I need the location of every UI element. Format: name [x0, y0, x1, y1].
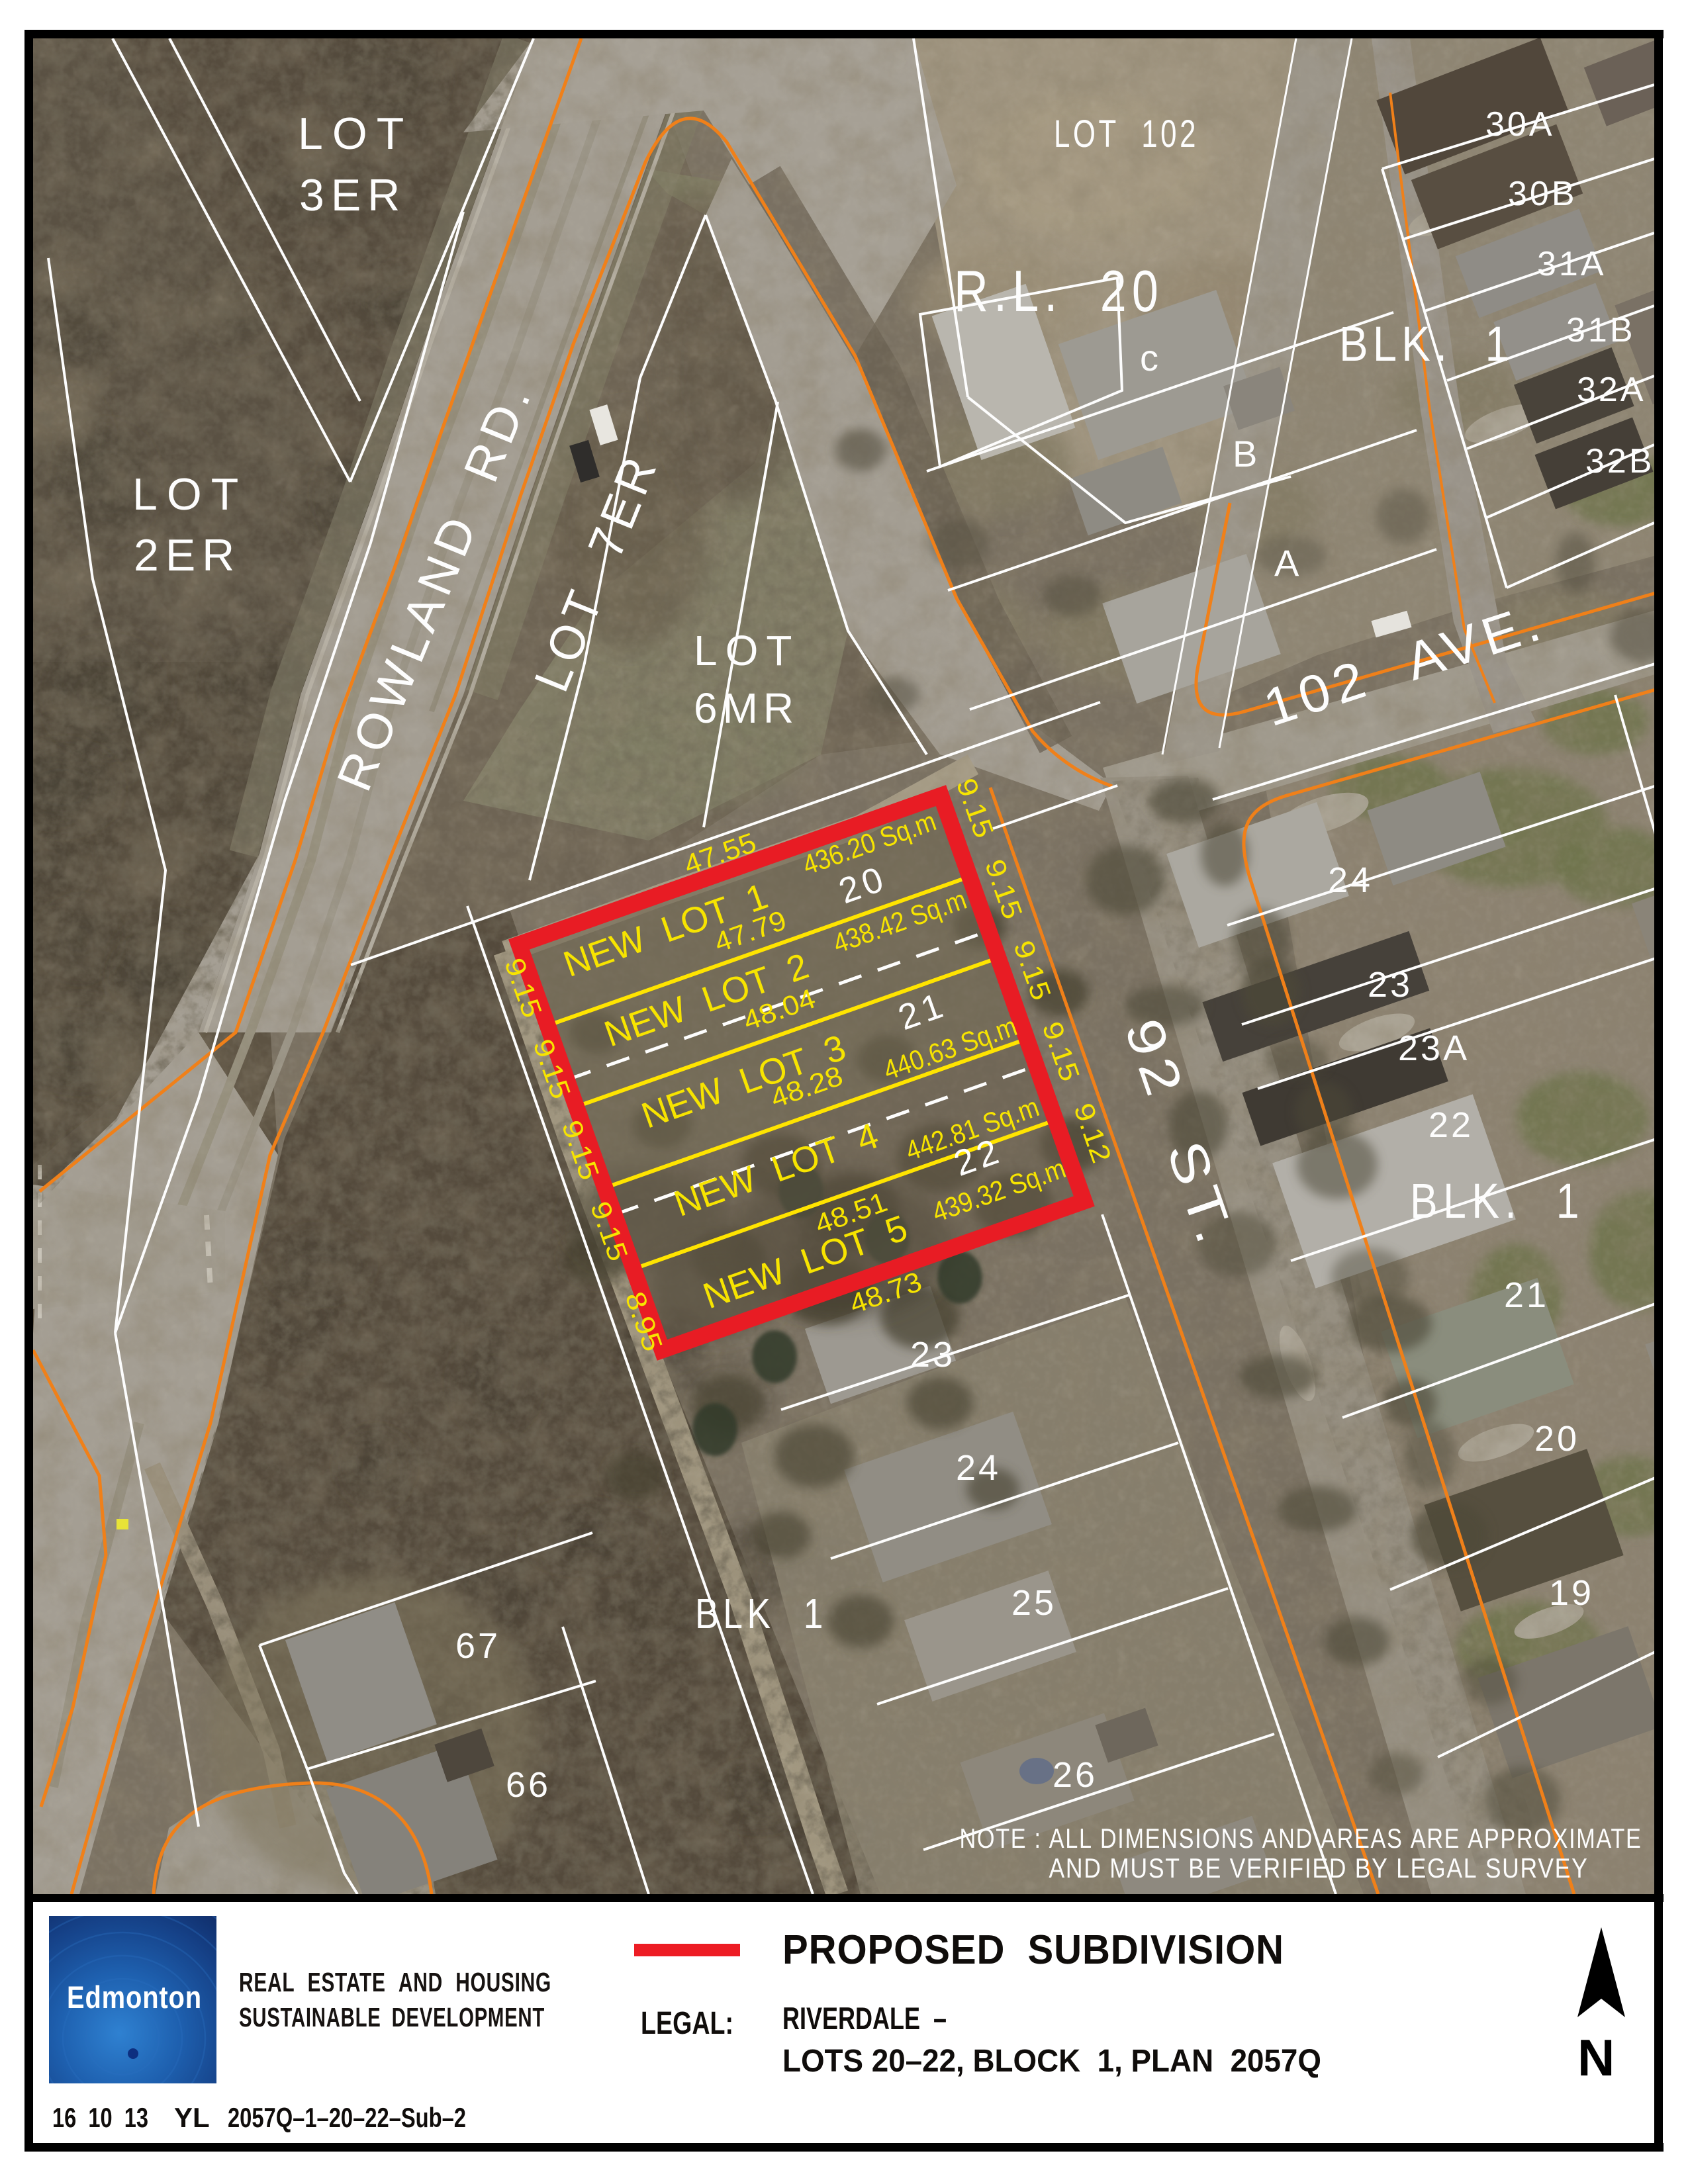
svg-text:c: c: [1140, 337, 1158, 379]
svg-text:6MR: 6MR: [694, 684, 799, 732]
svg-text:20: 20: [1534, 1419, 1579, 1459]
svg-text:2ER: 2ER: [134, 530, 241, 580]
svg-text:23A: 23A: [1398, 1028, 1470, 1068]
svg-text:BLK. 1: BLK. 1: [1410, 1173, 1585, 1228]
svg-text:19: 19: [1549, 1573, 1594, 1613]
svg-text:R.L. 20: R.L. 20: [954, 258, 1164, 324]
svg-text:30B: 30B: [1508, 175, 1577, 213]
svg-text:16 10 13: 16 10 13: [52, 2102, 148, 2133]
svg-text:REAL ESTATE AND HOUSING: REAL ESTATE AND HOUSING: [239, 1967, 551, 1997]
svg-text:A: A: [1274, 542, 1299, 584]
svg-text:SUSTAINABLE DEVELOPMENT: SUSTAINABLE DEVELOPMENT: [239, 2002, 545, 2032]
svg-text:YL: YL: [174, 2102, 210, 2133]
svg-text:67: 67: [455, 1626, 500, 1666]
svg-text:30A: 30A: [1485, 105, 1555, 144]
svg-text:2057Q–1–20–22–Sub–2: 2057Q–1–20–22–Sub–2: [228, 2102, 466, 2133]
svg-text:B: B: [1233, 433, 1257, 475]
svg-text:NOTE : ALL DIMENSIONS AND AREA: NOTE : ALL DIMENSIONS AND AREAS ARE APPR…: [960, 1823, 1642, 1854]
svg-text:LEGAL:: LEGAL:: [641, 2006, 733, 2041]
svg-text:21: 21: [1504, 1275, 1549, 1315]
svg-text:N: N: [1577, 2028, 1615, 2087]
svg-text:66: 66: [506, 1765, 551, 1805]
svg-text:24: 24: [1328, 860, 1373, 900]
svg-text:23: 23: [1368, 965, 1413, 1005]
svg-text:3ER: 3ER: [299, 170, 406, 220]
svg-text:23: 23: [910, 1335, 955, 1375]
svg-text:LOT: LOT: [132, 469, 248, 520]
svg-text:24: 24: [956, 1448, 1001, 1488]
svg-text:Edmonton: Edmonton: [67, 1979, 202, 2015]
svg-text:BLK 1: BLK 1: [695, 1590, 827, 1637]
svg-text:LOT: LOT: [694, 627, 800, 674]
svg-text:PROPOSED SUBDIVISION: PROPOSED SUBDIVISION: [782, 1927, 1284, 1973]
svg-text:22: 22: [1429, 1105, 1474, 1145]
svg-text:32B: 32B: [1585, 442, 1655, 480]
svg-text:31B: 31B: [1566, 311, 1636, 349]
svg-text:BLK. 1: BLK. 1: [1339, 316, 1514, 371]
svg-text:RIVERDALE –: RIVERDALE –: [782, 2001, 947, 2036]
svg-text:32A: 32A: [1577, 371, 1646, 409]
svg-text:LOTS 20–22, BLOCK 1, PLAN 20: LOTS 20–22, BLOCK 1, PLAN 2057Q: [782, 2044, 1321, 2079]
svg-text:31A: 31A: [1537, 245, 1607, 283]
svg-text:26: 26: [1053, 1755, 1098, 1795]
svg-text:LOT 102: LOT 102: [1054, 113, 1199, 156]
svg-text:LOT: LOT: [298, 109, 413, 159]
svg-text:AND MUST BE VERIFIED BY LEGAL: AND MUST BE VERIFIED BY LEGAL SURVEY: [1049, 1852, 1589, 1884]
svg-text:25: 25: [1011, 1583, 1056, 1623]
